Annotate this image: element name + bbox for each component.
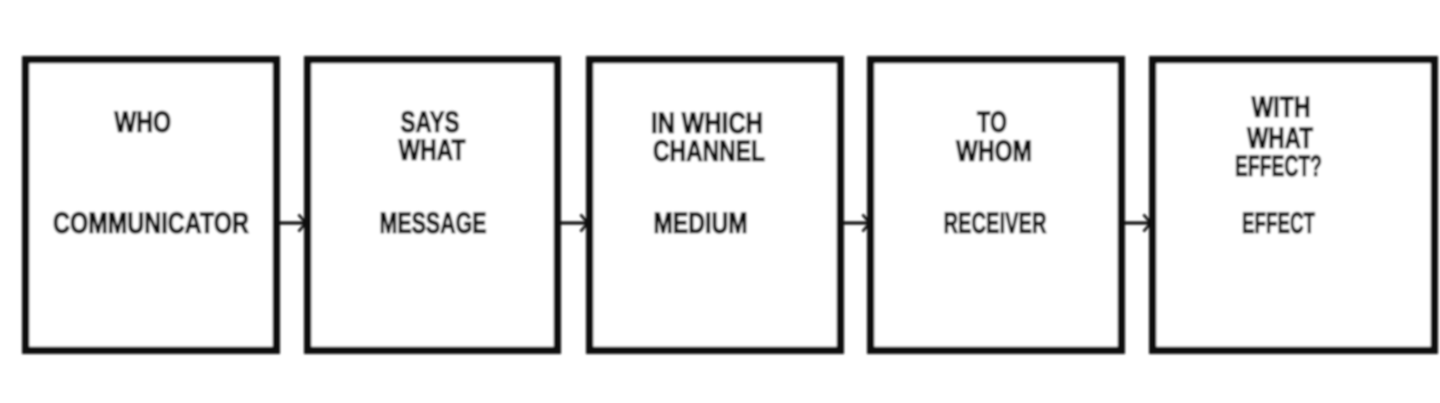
svg-text:EFFECT?: EFFECT? — [1235, 150, 1322, 183]
svg-text:WHO: WHO — [114, 106, 171, 139]
svg-text:MESSAGE: MESSAGE — [380, 207, 487, 240]
svg-text:RECEIVER: RECEIVER — [944, 207, 1047, 240]
svg-text:CHANNEL: CHANNEL — [653, 135, 765, 168]
svg-text:EFFECT: EFFECT — [1242, 207, 1315, 240]
svg-text:MEDIUM: MEDIUM — [654, 207, 748, 240]
svg-text:WHAT: WHAT — [399, 134, 466, 167]
svg-text:COMMUNICATOR: COMMUNICATOR — [53, 207, 249, 240]
svg-text:WHOM: WHOM — [956, 135, 1032, 168]
svg-text:WITH: WITH — [1252, 91, 1311, 124]
